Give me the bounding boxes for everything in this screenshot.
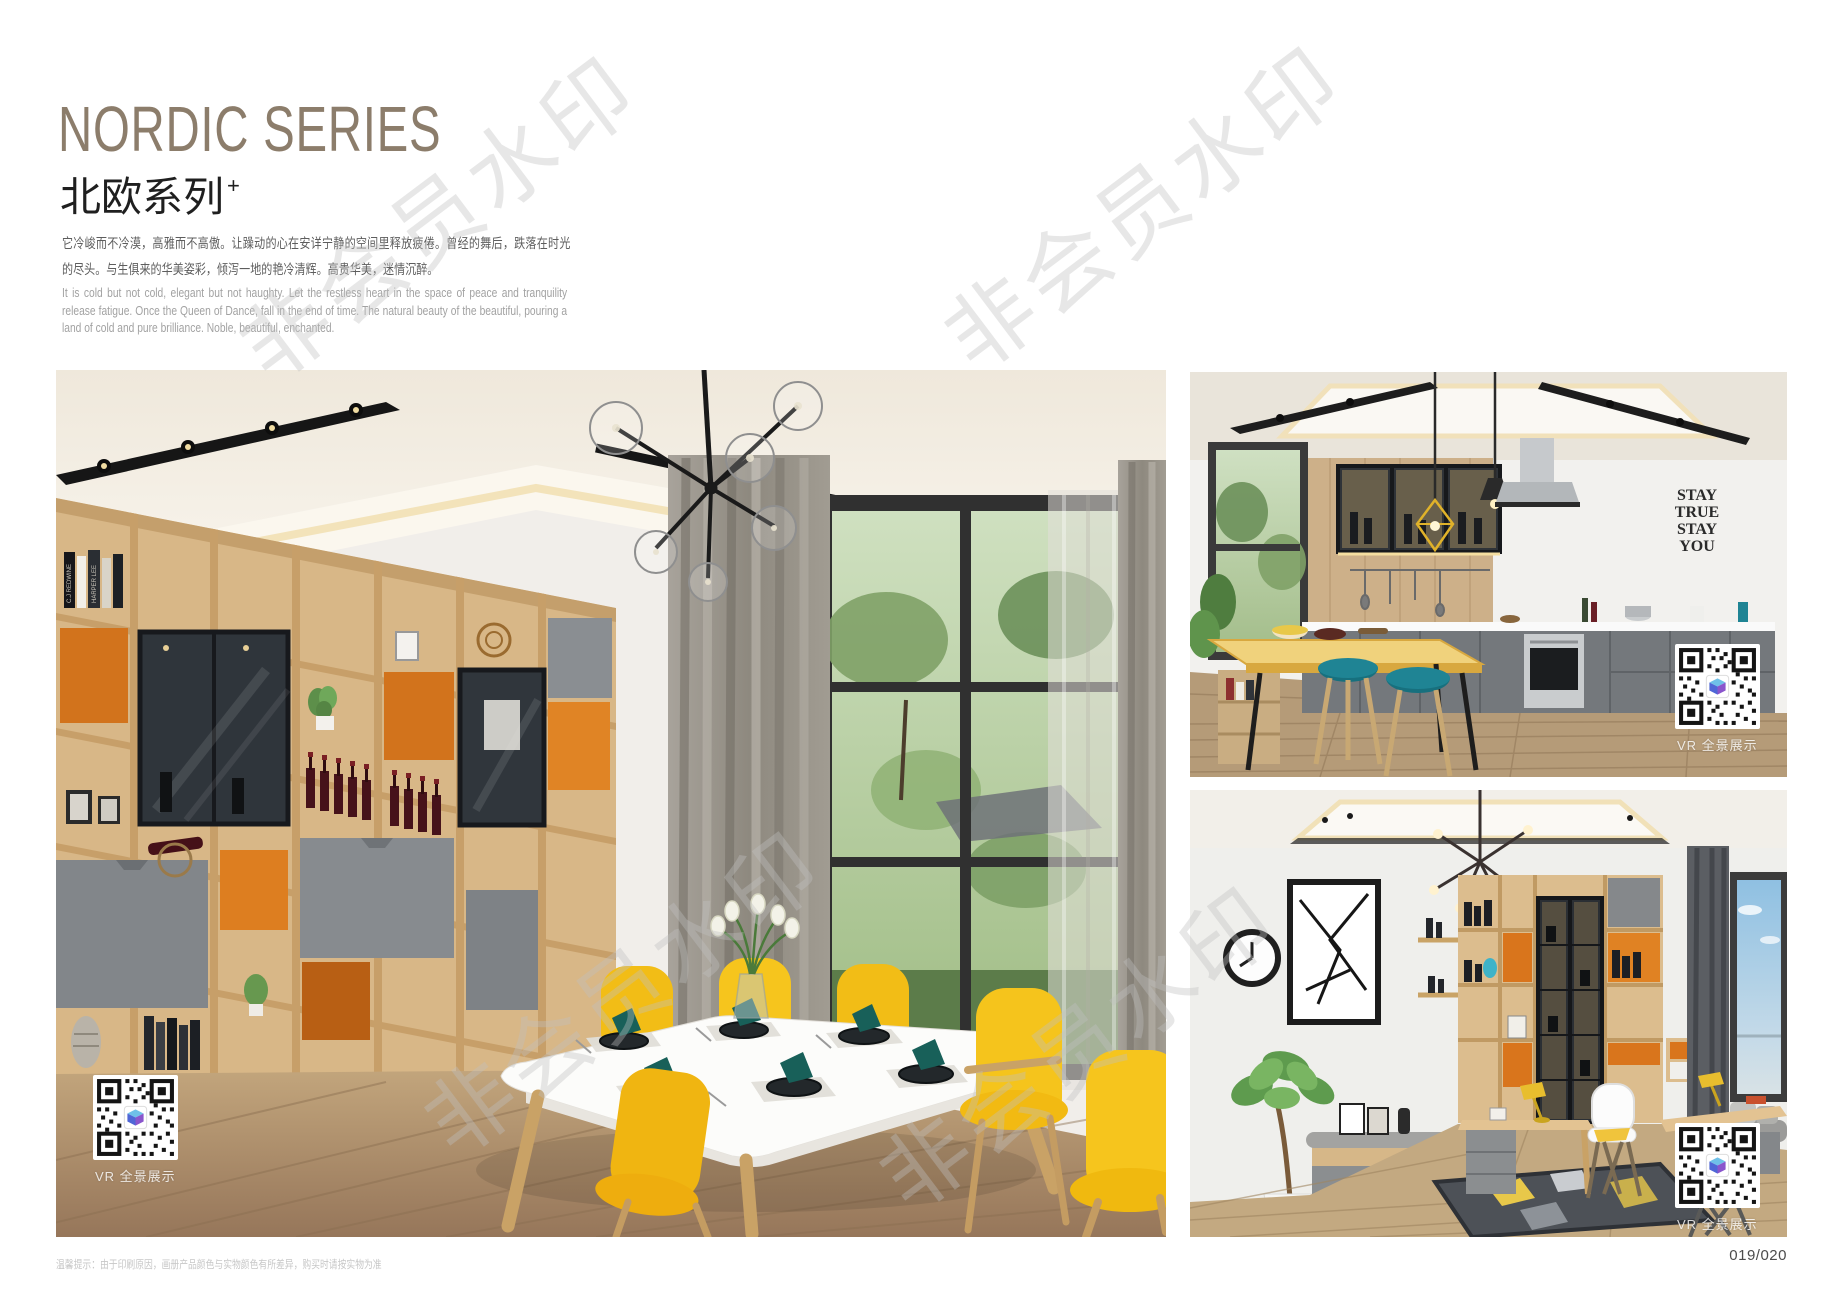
wall-sign-line: STAY	[1677, 521, 1717, 538]
vr-panorama-tag: VR 全景展示	[93, 1075, 178, 1185]
wall-sign-line: STAY	[1677, 487, 1717, 504]
qr-code	[1675, 644, 1760, 729]
series-title-en: NORDIC SERIES	[58, 96, 441, 163]
qr-code	[93, 1075, 178, 1160]
watermark-text: 非会员水印	[914, 11, 1366, 395]
series-intro-en: It is cold but not cold, elegant but not…	[62, 285, 567, 338]
curtain-right	[1118, 460, 1166, 1152]
catalog-page: { "page": { "page_number": "019/020", "f…	[0, 0, 1836, 1307]
book-spine-title: C.J REDWINE	[67, 564, 73, 603]
qr-center-logo	[1706, 1154, 1728, 1176]
wall-sign-line: TRUE	[1675, 504, 1719, 521]
series-title-zh-text: 北欧系列	[60, 174, 224, 220]
art-frame	[1290, 882, 1378, 1022]
built-in-oven	[1524, 634, 1584, 708]
qr-center-logo	[124, 1106, 146, 1128]
vr-label: VR 全景展示	[1677, 1214, 1760, 1233]
series-title-zh: 北欧系列+	[60, 163, 240, 223]
series-title-superscript: +	[227, 173, 240, 198]
glass-cabinet	[1538, 898, 1602, 1123]
qr-code	[1675, 1123, 1760, 1208]
glass-display-cabinet	[460, 670, 544, 825]
dining-room-scene: C.J REDWINE HARPER LEE	[56, 370, 1166, 1237]
wall-clock	[1226, 932, 1278, 984]
wall-sign-line: YOU	[1679, 538, 1715, 555]
window	[1730, 872, 1787, 1102]
curtain	[1687, 846, 1729, 1130]
ceiling	[1190, 790, 1787, 848]
book-spine-title: HARPER LEE	[92, 565, 98, 603]
dining-room-photo: C.J REDWINE HARPER LEE	[56, 370, 1166, 1237]
wall-sign: STAY TRUE STAY YOU	[1675, 487, 1719, 555]
watermark-text: 非会员水印	[209, 21, 661, 405]
vr-label: VR 全景展示	[1677, 735, 1760, 754]
page-number: 019/020	[1729, 1247, 1787, 1264]
glass-upper-cabinet	[1338, 466, 1500, 554]
book-spines: C.J REDWINE HARPER LEE	[64, 550, 123, 608]
vr-panorama-tag: VR 全景展示	[1675, 644, 1760, 754]
kitchen-photo: STAY TRUE STAY YOU	[1190, 372, 1787, 777]
footer-disclaimer: 温馨提示：由于印刷原因，画册产品颜色与实物颜色有所差异，购买时请按实物为准	[56, 1256, 382, 1272]
vr-label: VR 全景展示	[95, 1166, 178, 1185]
study-room-photo: VR 全景展示	[1190, 790, 1787, 1237]
series-intro-zh: 它冷峻而不冷漠，高雅而不高傲。让躁动的心在安详宁静的空间里释放疲倦。曾经的舞后，…	[62, 231, 570, 282]
qr-center-logo	[1706, 675, 1728, 697]
vr-panorama-tag: VR 全景展示	[1675, 1123, 1760, 1233]
glass-display-cabinet	[140, 632, 288, 824]
